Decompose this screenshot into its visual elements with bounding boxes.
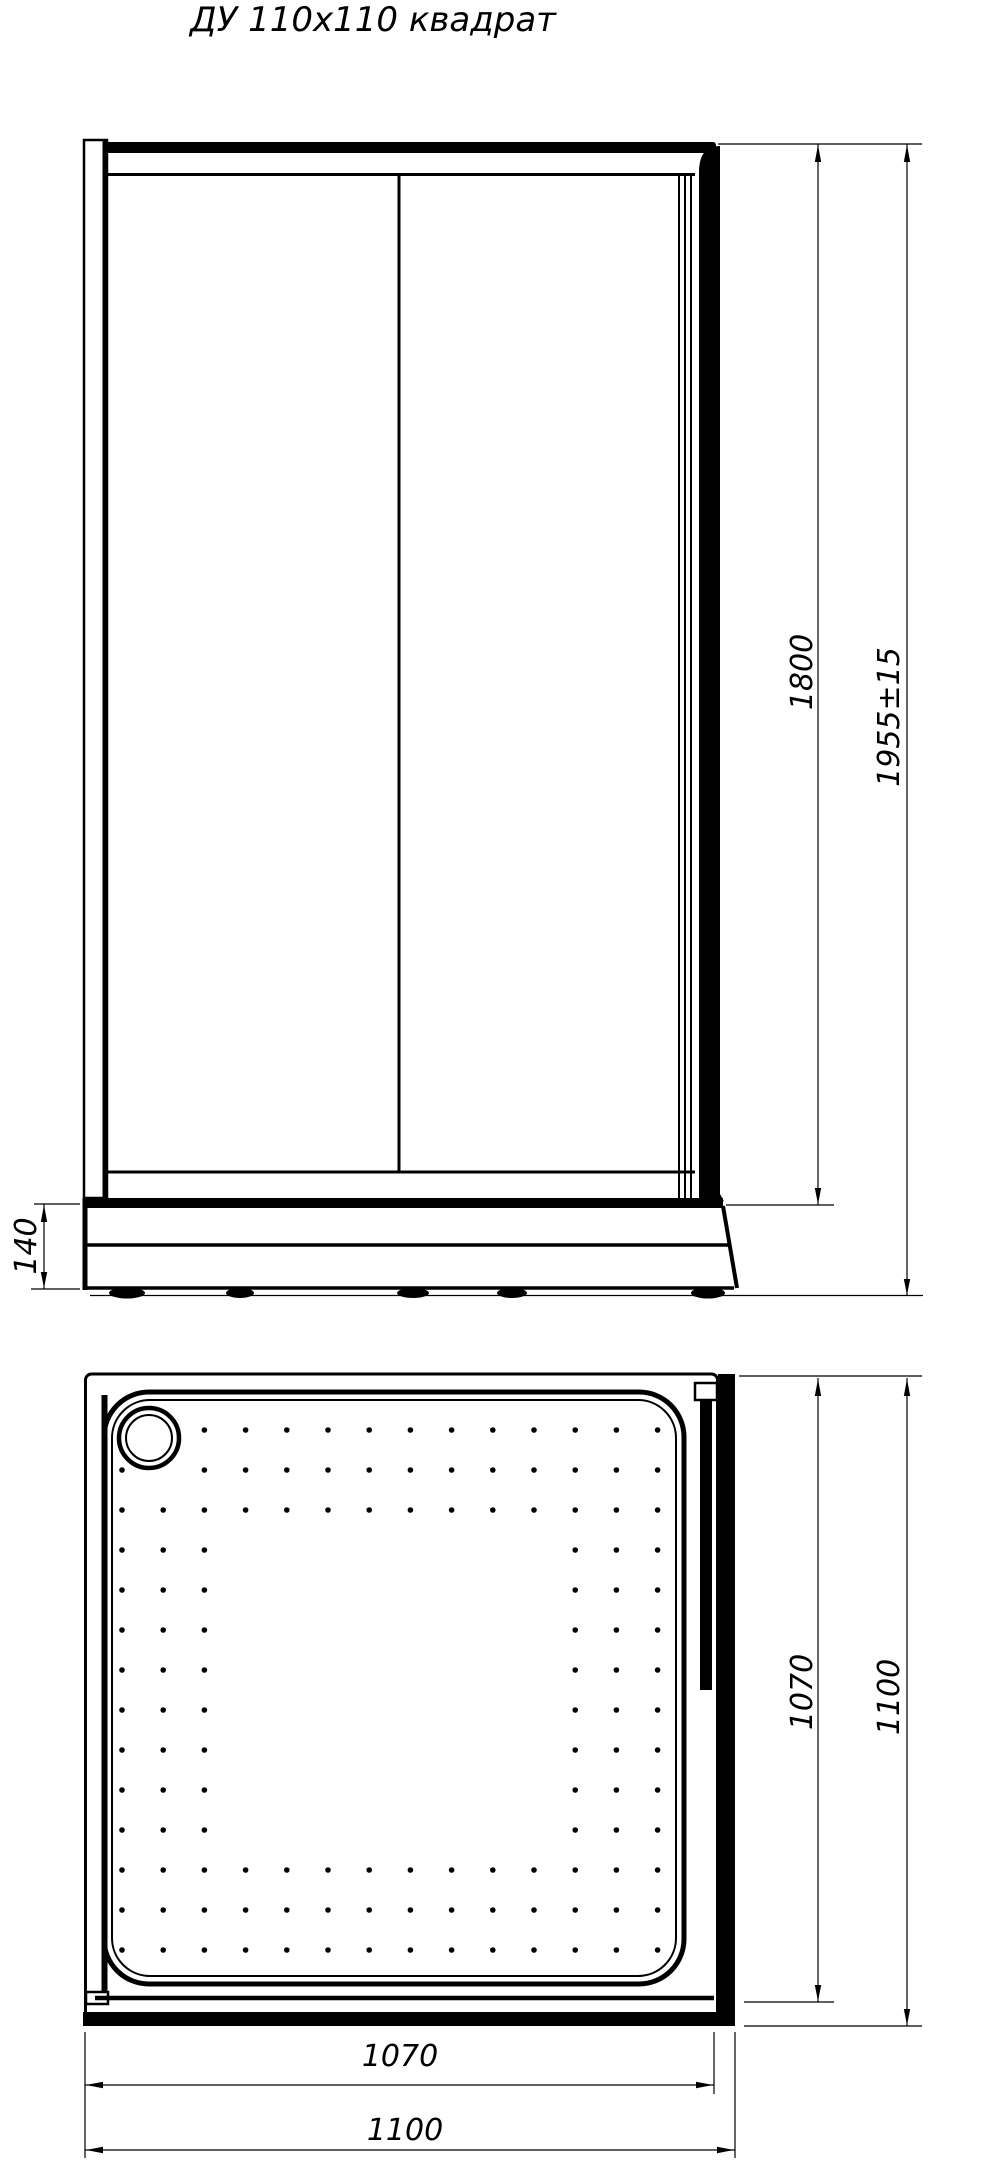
- arrow-right: [696, 2082, 713, 2088]
- arrow-right: [717, 2147, 734, 2153]
- tray-dot: [490, 1907, 496, 1913]
- tray-dot: [325, 1507, 331, 1513]
- tray-dot: [408, 1427, 414, 1433]
- arrow-down: [815, 1985, 821, 2001]
- tray-dot: [531, 1427, 537, 1433]
- arrow-down: [815, 1188, 821, 1204]
- tray-dot: [202, 1667, 208, 1673]
- tray-outer-rect: [86, 1374, 718, 2018]
- dim-total-height: 1955±15: [872, 144, 910, 1296]
- tray-dot: [655, 1627, 661, 1633]
- tray-dot: [325, 1427, 331, 1433]
- tray-dot: [366, 1947, 372, 1953]
- tray-dot: [119, 1707, 125, 1713]
- tray-dot: [449, 1427, 455, 1433]
- tray-dot: [119, 1907, 125, 1913]
- tray-dot: [284, 1427, 290, 1433]
- foot-2: [226, 1288, 254, 1298]
- foot-1: [109, 1288, 145, 1299]
- tray-dot: [572, 1787, 578, 1793]
- tray-dot: [531, 1467, 537, 1473]
- right-wall-glass: [700, 1400, 712, 1690]
- tray-dot: [490, 1427, 496, 1433]
- dim-tray-height: 140: [9, 1204, 80, 1289]
- tray-dot: [408, 1507, 414, 1513]
- arrow-up: [815, 1379, 821, 1396]
- right-wall-end-cap: [695, 1383, 717, 1400]
- dim-plan-outer-depth: 1100: [744, 1378, 922, 2026]
- dim-label-outer-width: 1100: [367, 2113, 443, 2148]
- tray-dot: [614, 1587, 620, 1593]
- tray-dot: [243, 1947, 249, 1953]
- tray-dot: [449, 1907, 455, 1913]
- tray-dot: [243, 1467, 249, 1473]
- tray-dot: [366, 1867, 372, 1873]
- dim-label-outer-depth: 1100: [872, 1659, 907, 1735]
- tray-dot: [202, 1467, 208, 1473]
- tray-dot: [572, 1507, 578, 1513]
- tray-dot: [284, 1907, 290, 1913]
- tray-dot: [284, 1467, 290, 1473]
- front-view: [83, 140, 923, 1299]
- tray-dot: [160, 1507, 166, 1513]
- tray-dot: [202, 1747, 208, 1753]
- tray-dot: [160, 1627, 166, 1633]
- tray-dot: [614, 1747, 620, 1753]
- technical-drawing: ДУ 110x110 квадрат: [0, 0, 981, 2165]
- tray-dot: [160, 1547, 166, 1553]
- tray-dot: [160, 1947, 166, 1953]
- tray-dot: [655, 1907, 661, 1913]
- arrow-up: [904, 1379, 910, 1396]
- tray-dot: [531, 1947, 537, 1953]
- tray-dot: [614, 1867, 620, 1873]
- tray-dot: [284, 1507, 290, 1513]
- tray-dot: [449, 1947, 455, 1953]
- top-rail-bar: [106, 142, 716, 153]
- tray-dot: [614, 1787, 620, 1793]
- tray-dot: [572, 1587, 578, 1593]
- tray-dot: [284, 1947, 290, 1953]
- tray-dot: [572, 1467, 578, 1473]
- tray-dot: [614, 1507, 620, 1513]
- tray-dot: [490, 1467, 496, 1473]
- tray-top-edge: [83, 1198, 723, 1208]
- tray-dot: [325, 1467, 331, 1473]
- tray-dot: [614, 1467, 620, 1473]
- tray-dot: [408, 1907, 414, 1913]
- tray-dot: [202, 1867, 208, 1873]
- tray-dot: [572, 1427, 578, 1433]
- tray-dot: [119, 1587, 125, 1593]
- tray-dot: [408, 1467, 414, 1473]
- tray-dot: [572, 1627, 578, 1633]
- tray-dot: [655, 1867, 661, 1873]
- tray-dot: [119, 1667, 125, 1673]
- arrow-up: [904, 145, 910, 162]
- tray-dot: [119, 1467, 125, 1473]
- tray-dot: [202, 1947, 208, 1953]
- plan-view: [83, 1374, 735, 2026]
- tray-dot: [366, 1907, 372, 1913]
- dim-label-tray-height: 140: [9, 1217, 44, 1274]
- tray-dot: [160, 1667, 166, 1673]
- tray-dot: [202, 1547, 208, 1553]
- tray-dot: [119, 1747, 125, 1753]
- arrow-down: [904, 1279, 910, 1295]
- tray-dot: [655, 1507, 661, 1513]
- arrow-up: [815, 145, 821, 162]
- tray-rim-outer: [104, 1392, 684, 1984]
- tray-dot: [655, 1587, 661, 1593]
- tray-rim-inner: [112, 1400, 676, 1976]
- tray-dot: [202, 1587, 208, 1593]
- tray-dot: [614, 1907, 620, 1913]
- tray-dot: [366, 1507, 372, 1513]
- tray-dot: [202, 1787, 208, 1793]
- arrow-left: [86, 2082, 103, 2088]
- tray-dot: [655, 1467, 661, 1473]
- tray-dot: [655, 1787, 661, 1793]
- drawing-sheet: ДУ 110x110 квадрат: [0, 0, 981, 2165]
- tray-dot: [119, 1627, 125, 1633]
- tray-dot: [284, 1867, 290, 1873]
- tray-dot: [614, 1627, 620, 1633]
- foot-3: [397, 1288, 429, 1298]
- tray-dot: [243, 1907, 249, 1913]
- tray-dot: [531, 1507, 537, 1513]
- tray-dot: [202, 1507, 208, 1513]
- drawing-title: ДУ 110x110 квадрат: [188, 0, 557, 40]
- tray-dot: [655, 1547, 661, 1553]
- tray-dot: [119, 1507, 125, 1513]
- tray-dot: [572, 1747, 578, 1753]
- foot-4: [497, 1288, 527, 1298]
- tray-dot: [243, 1427, 249, 1433]
- tray-dot: [655, 1707, 661, 1713]
- drain-outer-circle: [119, 1408, 179, 1468]
- dim-label-total-height: 1955±15: [872, 647, 907, 787]
- tray-dot: [449, 1867, 455, 1873]
- drain-inner-circle: [126, 1415, 172, 1461]
- tray-dot: [531, 1867, 537, 1873]
- tray-dot: [160, 1827, 166, 1833]
- tray-dot: [614, 1947, 620, 1953]
- tray-dot: [119, 1827, 125, 1833]
- tray-dot: [490, 1947, 496, 1953]
- tray-dot: [614, 1827, 620, 1833]
- tray-dot: [202, 1427, 208, 1433]
- tray-dot: [202, 1707, 208, 1713]
- tray-dot: [655, 1827, 661, 1833]
- tray-dot: [572, 1707, 578, 1713]
- tray-dot: [408, 1947, 414, 1953]
- tray-dot: [160, 1707, 166, 1713]
- tray-dot: [325, 1907, 331, 1913]
- tray-dot: [366, 1467, 372, 1473]
- tray-dot: [160, 1747, 166, 1753]
- tray-dot: [572, 1827, 578, 1833]
- tray-dot: [202, 1827, 208, 1833]
- tray-dot: [160, 1587, 166, 1593]
- tray-dot: [655, 1667, 661, 1673]
- tray-dot: [119, 1547, 125, 1553]
- tray-dot: [572, 1867, 578, 1873]
- dim-label-inner-width: 1070: [362, 2039, 438, 2074]
- tray-dot: [202, 1907, 208, 1913]
- tray-dot: [325, 1947, 331, 1953]
- arrow-left: [86, 2147, 103, 2153]
- tray-dot: [614, 1707, 620, 1713]
- tray-dot: [243, 1507, 249, 1513]
- foot-5: [691, 1288, 725, 1299]
- tray-dot: [572, 1667, 578, 1673]
- tray-dot: [490, 1507, 496, 1513]
- tray-dot: [655, 1747, 661, 1753]
- tray-dot: [243, 1867, 249, 1873]
- tray-dot: [655, 1947, 661, 1953]
- right-wall-band: [718, 1374, 735, 2026]
- tray-dot: [614, 1667, 620, 1673]
- tray-dot: [531, 1907, 537, 1913]
- tray-right-bulge-lower: [723, 1206, 737, 1288]
- tray-dot: [160, 1867, 166, 1873]
- right-wall-profile: [699, 146, 720, 1198]
- tray-dot: [449, 1467, 455, 1473]
- tray-dot: [572, 1947, 578, 1953]
- tray-dot: [572, 1907, 578, 1913]
- tray-dot: [655, 1427, 661, 1433]
- tray-dot: [202, 1627, 208, 1633]
- tray-dots: [119, 1427, 660, 1953]
- arrow-down: [904, 2009, 910, 2025]
- dim-label-inner-depth: 1070: [785, 1654, 820, 1730]
- tray-dot: [119, 1787, 125, 1793]
- tray-dot: [325, 1867, 331, 1873]
- tray-dot: [490, 1867, 496, 1873]
- tray-dot: [614, 1427, 620, 1433]
- tray-dot: [160, 1787, 166, 1793]
- tray-dot: [119, 1947, 125, 1953]
- tray-dot: [449, 1507, 455, 1513]
- tray-dot: [366, 1427, 372, 1433]
- tray-dot: [408, 1867, 414, 1873]
- front-apron: [83, 2012, 735, 2026]
- dim-label-door-height: 1800: [785, 634, 820, 710]
- tray-dot: [160, 1907, 166, 1913]
- tray-dot: [614, 1547, 620, 1553]
- tray-dot: [119, 1867, 125, 1873]
- tray-dot: [572, 1547, 578, 1553]
